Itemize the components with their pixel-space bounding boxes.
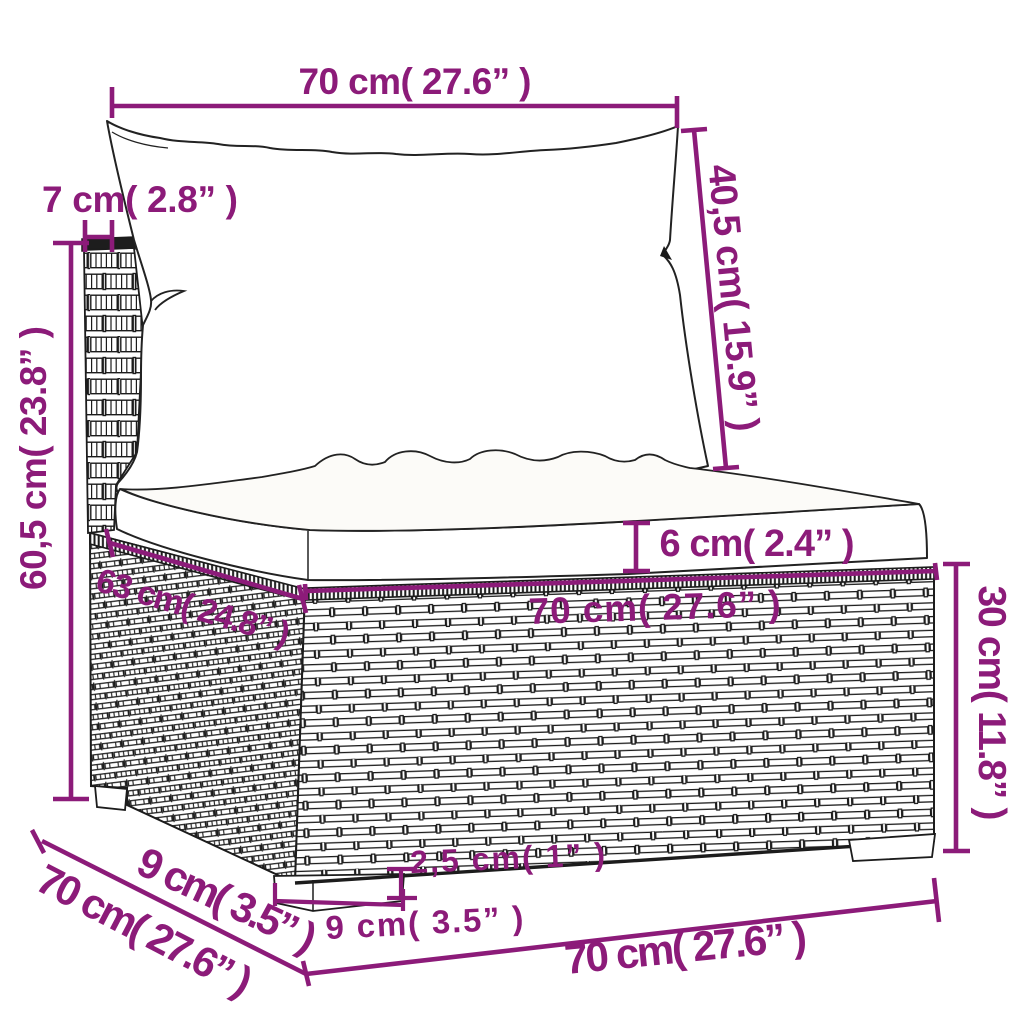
svg-text:6 cm( 2.4” ): 6 cm( 2.4” ) bbox=[660, 523, 855, 565]
svg-text:70 cm( 27.6” ): 70 cm( 27.6” ) bbox=[528, 583, 781, 632]
svg-text:60,5 cm( 23.8” ): 60,5 cm( 23.8” ) bbox=[13, 326, 54, 590]
svg-text:70 cm( 27.6” ): 70 cm( 27.6” ) bbox=[299, 61, 532, 102]
svg-text:30 cm( 11.8” ): 30 cm( 11.8” ) bbox=[970, 586, 1013, 821]
svg-text:7 cm( 2.8” ): 7 cm( 2.8” ) bbox=[42, 179, 238, 220]
